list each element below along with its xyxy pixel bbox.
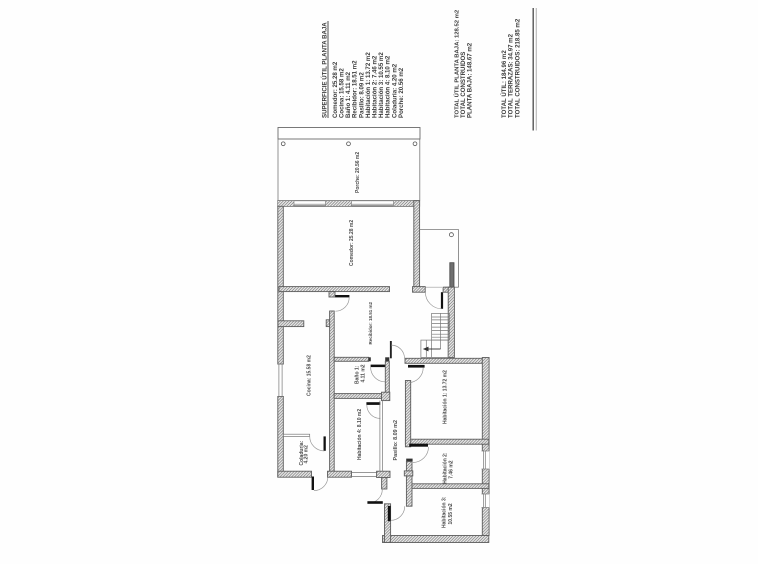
svg-text:Habitación 3:: Habitación 3: xyxy=(442,496,448,528)
svg-text:Comedor: 25.28 m2: Comedor: 25.28 m2 xyxy=(349,220,355,266)
svg-text:PLANTA BAJA: 148.67 m2: PLANTA BAJA: 148.67 m2 xyxy=(467,42,474,118)
svg-text:Pasillo: 8.09 m2: Pasillo: 8.09 m2 xyxy=(393,420,399,460)
svg-text:Cocina: 15.58 m2: Cocina: 15.58 m2 xyxy=(307,355,313,396)
svg-text:Habitación 1: 13.72 m2: Habitación 1: 13.72 m2 xyxy=(442,370,448,424)
svg-text:SUPERFICIE ÚTIL PLANTA BAJA: SUPERFICIE ÚTIL PLANTA BAJA xyxy=(322,22,329,118)
svg-text:TOTAL TERRAZAS: 34.97 m2: TOTAL TERRAZAS: 34.97 m2 xyxy=(508,33,515,118)
svg-text:4.11 m2: 4.11 m2 xyxy=(360,364,366,382)
svg-text:Habitación 4: 8.10 m2: Habitación 4: 8.10 m2 xyxy=(357,409,363,460)
svg-text:Recibidor: 18.51 m2: Recibidor: 18.51 m2 xyxy=(368,301,373,344)
svg-text:4.20 m2: 4.20 m2 xyxy=(304,445,310,464)
svg-text:TOTAL CONSTRUIDOS: 218.85 m2: TOTAL CONSTRUIDOS: 218.85 m2 xyxy=(515,18,522,118)
svg-text:7.46 m2: 7.46 m2 xyxy=(449,460,455,479)
svg-text:Porche: 20.56 m2: Porche: 20.56 m2 xyxy=(355,152,361,193)
svg-text:Porche: 20.56 m2: Porche: 20.56 m2 xyxy=(398,67,405,118)
svg-text:10.55 m2: 10.55 m2 xyxy=(448,503,454,524)
